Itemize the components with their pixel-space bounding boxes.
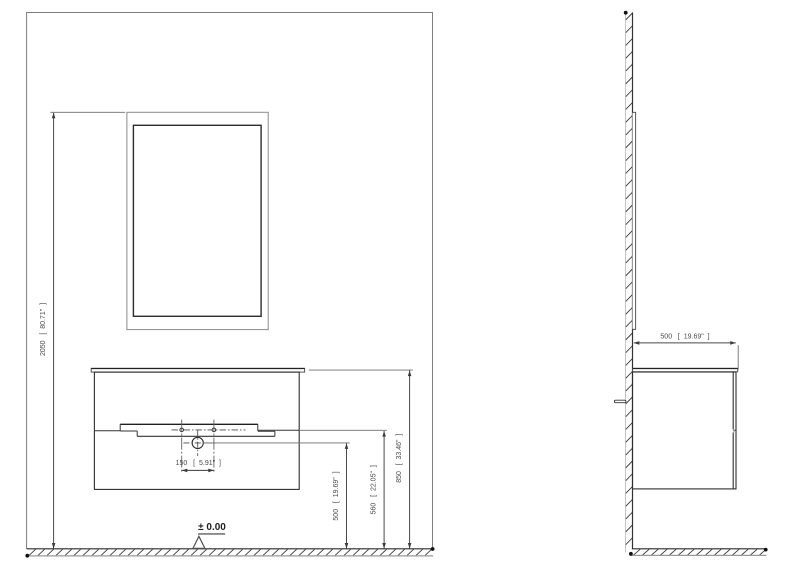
svg-text:500 [ 19.69" ]: 500 [ 19.69" ] bbox=[660, 333, 709, 340]
svg-text:850 [ 33.46" ]: 850 [ 33.46" ] bbox=[396, 434, 403, 483]
svg-text:150 [ 5.91" ]: 150 [ 5.91" ] bbox=[176, 460, 221, 467]
svg-text:2050 [ 80.71" ]: 2050 [ 80.71" ] bbox=[40, 303, 47, 356]
svg-text:± 0.00: ± 0.00 bbox=[198, 522, 226, 533]
svg-text:560 [ 22.05" ]: 560 [ 22.05" ] bbox=[371, 465, 378, 514]
svg-text:500 [ 19.69" ]: 500 [ 19.69" ] bbox=[333, 471, 340, 520]
